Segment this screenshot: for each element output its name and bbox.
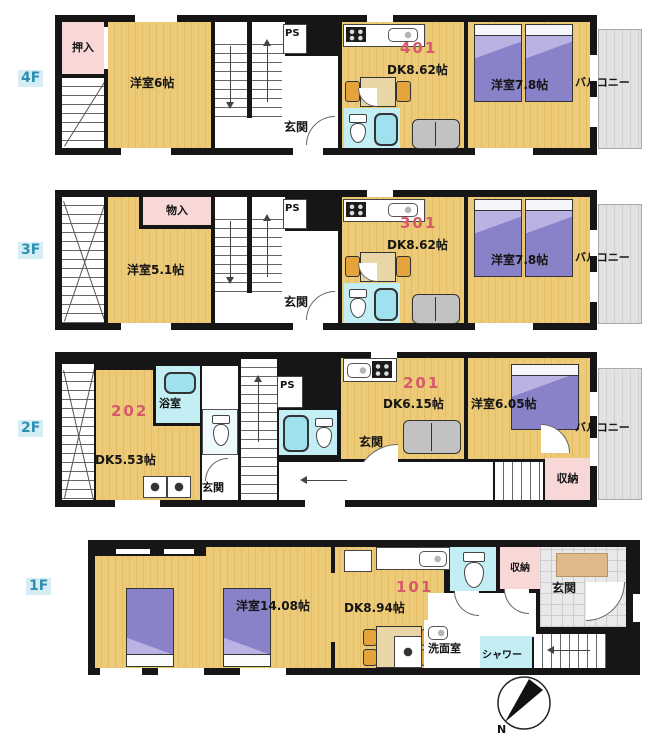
f1-toilet-icon bbox=[464, 562, 484, 588]
f3-monoire-label: 物入 bbox=[166, 205, 188, 217]
f2-sink-icon bbox=[347, 363, 371, 378]
compass-north-label: N bbox=[497, 723, 506, 736]
f1-shower-label: シャワー bbox=[482, 650, 522, 661]
f2-dk-right-label: DK6.15帖 bbox=[383, 398, 444, 411]
f1-sink-icon bbox=[419, 551, 447, 567]
f1-west-room-label: 洋室14.08帖 bbox=[236, 600, 310, 613]
floor-plan-2f: 浴室 202 DK5.53帖 玄関 PS 201 DK6.15帖 玄関 bbox=[55, 352, 597, 507]
f1-washer-icon bbox=[394, 636, 422, 668]
f2-balcony-label: バルコニー bbox=[575, 422, 630, 434]
f4-stairwell-flight-left bbox=[215, 36, 247, 124]
f1-bed-1 bbox=[126, 588, 174, 667]
f4-unit-bath bbox=[344, 108, 400, 148]
f3-balcony-label: バルコニー bbox=[575, 252, 630, 264]
f3-sofa bbox=[412, 294, 460, 324]
f3-west-room-51-label: 洋室5.1帖 bbox=[127, 264, 184, 277]
f2-shared-corridor bbox=[279, 462, 493, 500]
f1-washroom-label: 洗面室 bbox=[428, 643, 461, 655]
f4-bed-1-pillow bbox=[475, 25, 521, 36]
f2-unit-toilet-tank-icon bbox=[315, 418, 333, 427]
f2-unit-toilet-icon bbox=[316, 427, 332, 448]
f2-corridor-arrow-head bbox=[300, 476, 307, 484]
f3-stairwell-flight-left bbox=[215, 211, 247, 299]
floor-label-3f: 3F bbox=[18, 242, 43, 259]
f3-stairwell-flight-right bbox=[252, 211, 285, 299]
f2-storage: 収納 bbox=[545, 458, 590, 500]
f3-west-room-78-label: 洋室7.8帖 bbox=[491, 254, 548, 267]
f4-stove-icon bbox=[346, 27, 366, 42]
f1-stair-arrow-shaft bbox=[554, 650, 590, 651]
f1-bed-1-sheet bbox=[127, 654, 173, 666]
f2-window-bottom-2 bbox=[305, 500, 345, 507]
compass-icon: N bbox=[494, 674, 556, 736]
f2-storage-label: 収納 bbox=[557, 473, 579, 485]
f3-balcony-window-opening bbox=[590, 272, 597, 302]
f3-unit-bath bbox=[344, 283, 400, 323]
f3-entry-opening bbox=[293, 323, 323, 330]
floor-plan-1f: 洋室14.08帖 101 DK8.94帖 収納 洗面室 シャワー bbox=[88, 540, 640, 675]
f1-stairs bbox=[534, 634, 606, 668]
f2-window-top-1 bbox=[371, 352, 397, 358]
f3-ps-label: PS bbox=[285, 203, 300, 214]
f4-stairs-left bbox=[62, 78, 104, 148]
f1-window-top-2 bbox=[164, 549, 194, 554]
f1-window-top-1 bbox=[116, 549, 150, 554]
f2-ps-label: PS bbox=[280, 380, 295, 391]
f2-unit-number-left: 202 bbox=[111, 404, 148, 419]
floor-plan-sheet: 4F 3F 2F 1F 押入 洋室6帖 PS 玄関 bbox=[0, 0, 666, 741]
f3-window-top-1 bbox=[367, 190, 393, 197]
f4-toilet-icon bbox=[350, 123, 366, 143]
f4-ps-label: PS bbox=[285, 28, 300, 39]
f4-oshiire-label: 押入 bbox=[72, 42, 94, 54]
floor-plan-3f: 物入 洋室5.1帖 PS 玄関 301 DK8.62帖 bbox=[55, 190, 597, 330]
floor-label-4f: 4F bbox=[18, 70, 43, 87]
f3-chair-right bbox=[396, 256, 411, 277]
f4-west-room-6-label: 洋室6帖 bbox=[130, 77, 174, 90]
f1-storage-label: 収納 bbox=[510, 563, 530, 574]
f3-stairwell bbox=[215, 197, 285, 323]
f3-toilet-tank-icon bbox=[349, 289, 367, 298]
f1-appliance-icon bbox=[344, 550, 372, 572]
f4-west-room-78-label: 洋室7.8帖 bbox=[491, 79, 548, 92]
f4-genkan-label: 玄関 bbox=[284, 121, 308, 134]
f2-toilet-icon bbox=[213, 424, 229, 446]
f4-bed-2-pillow bbox=[526, 25, 572, 36]
f2-stair-arrow-up-shaft bbox=[258, 382, 259, 442]
f2-window-bottom-1 bbox=[115, 500, 160, 507]
f3-stair-arrow-down-head bbox=[226, 277, 234, 284]
f1-storage: 収納 bbox=[500, 547, 540, 589]
f3-dk-label: DK8.62帖 bbox=[387, 239, 448, 252]
f1-genkan-mat bbox=[556, 553, 608, 577]
f4-window-top-2 bbox=[367, 15, 393, 22]
f1-room-divider-top bbox=[331, 547, 335, 573]
f1-stair-arrow-head bbox=[547, 646, 554, 654]
f4-stair-arrow-up-shaft bbox=[267, 46, 268, 102]
f4-toilet-tank-icon bbox=[349, 114, 367, 123]
f3-bathtub-icon bbox=[374, 288, 398, 321]
f2-balcony-door-opening bbox=[590, 392, 597, 416]
f2-bed-pillow bbox=[512, 365, 578, 376]
f3-stair-arrow-down-shaft bbox=[230, 221, 231, 277]
f4-stair-arrow-down-shaft bbox=[230, 46, 231, 102]
f3-stairs-left bbox=[62, 197, 104, 323]
f2-stairs-down bbox=[495, 462, 543, 500]
f3-genkan-label: 玄関 bbox=[284, 296, 308, 309]
f2-dk-left-label: DK5.53帖 bbox=[95, 454, 156, 467]
f2-west-room-label: 洋室6.05帖 bbox=[471, 398, 537, 411]
f3-balcony-door-opening bbox=[590, 230, 597, 256]
f3-stair-arrow-up-head bbox=[263, 214, 271, 221]
f1-chair-1 bbox=[363, 629, 377, 646]
f3-toilet-icon bbox=[350, 298, 366, 318]
floor-label-1f: 1F bbox=[26, 578, 51, 595]
f1-window-bottom-2 bbox=[158, 668, 204, 675]
f4-sofa bbox=[412, 119, 460, 149]
f1-washbasin-icon bbox=[428, 626, 448, 640]
f2-unit-number-right: 201 bbox=[403, 376, 440, 391]
f3-closet-monoire: 物入 bbox=[139, 197, 211, 229]
f2-toilet-tank-icon bbox=[212, 415, 230, 424]
f1-kitchen-counter bbox=[376, 547, 450, 570]
f1-dk-label: DK8.94帖 bbox=[344, 602, 405, 615]
f2-stove-icon bbox=[372, 361, 392, 378]
f2-sofa-seam bbox=[431, 423, 432, 451]
f3-stair-arrow-up-shaft bbox=[267, 221, 268, 277]
f4-balcony-label: バルコニー bbox=[575, 77, 630, 89]
f3-bed-2-pillow bbox=[526, 200, 572, 211]
f1-toilet-room bbox=[450, 547, 496, 591]
f4-window-bottom-1 bbox=[121, 148, 171, 155]
f4-stair-arrow-down-head bbox=[226, 102, 234, 109]
f2-corridor-arrow-shaft bbox=[307, 480, 347, 481]
f3-window-bottom-1 bbox=[121, 323, 171, 330]
floor-plan-4f: 押入 洋室6帖 PS 玄関 401 DK8.62帖 bbox=[55, 15, 597, 155]
f4-stairs-left-diagonal bbox=[64, 78, 104, 146]
f4-stairwell bbox=[215, 22, 285, 148]
f2-bath-label: 浴室 bbox=[159, 398, 181, 410]
f1-toilet-tank-icon bbox=[463, 552, 485, 562]
f2-sofa bbox=[403, 420, 461, 454]
f2-stairs-left bbox=[62, 364, 94, 500]
f2-bathtub-icon bbox=[164, 372, 196, 394]
f2-unit-bath bbox=[279, 410, 337, 455]
f2-stair-arrow-up-head bbox=[254, 375, 262, 382]
f4-window-bottom-2 bbox=[475, 148, 533, 155]
f1-room-divider-bottom bbox=[331, 642, 335, 668]
f1-chair-2 bbox=[363, 649, 377, 666]
f2-mini-stove-icon bbox=[143, 476, 167, 498]
f4-entry-opening bbox=[293, 148, 323, 155]
f2-unit-bathtub-icon bbox=[283, 415, 309, 452]
f2-kitchen-counter bbox=[343, 358, 397, 382]
f2-balcony-window-opening bbox=[590, 438, 597, 466]
f2-stairs-left-diagonal-2 bbox=[64, 364, 94, 498]
f4-bathtub-icon bbox=[374, 113, 398, 146]
f4-stair-arrow-up-head bbox=[263, 39, 271, 46]
f2-mini-sink-icon bbox=[167, 476, 191, 498]
floor-label-2f: 2F bbox=[18, 420, 43, 437]
f3-stove-icon bbox=[346, 202, 366, 217]
f1-entrance-opening bbox=[633, 594, 640, 622]
f1-window-bottom-1 bbox=[100, 668, 142, 675]
f4-closet-oshiire: 押入 bbox=[62, 22, 104, 74]
f1-window-bottom-3 bbox=[240, 668, 286, 675]
f3-unit-number: 301 bbox=[400, 216, 437, 231]
f3-sofa-seam bbox=[435, 297, 436, 321]
f4-dk-label: DK8.62帖 bbox=[387, 64, 448, 77]
f3-window-bottom-2 bbox=[475, 323, 533, 330]
f2-toilet-room bbox=[202, 409, 238, 455]
f1-genkan-label: 玄関 bbox=[552, 582, 576, 595]
f2-genkan-left-label: 玄関 bbox=[202, 482, 224, 494]
f2-bathroom bbox=[153, 366, 200, 426]
f4-balcony-door-opening bbox=[590, 55, 597, 81]
f4-stairwell-flight-right bbox=[252, 36, 285, 124]
f3-bed-1-pillow bbox=[475, 200, 521, 211]
f4-chair-right bbox=[396, 81, 411, 102]
f4-window-top-1 bbox=[135, 15, 177, 22]
f4-unit-number: 401 bbox=[400, 41, 437, 56]
f4-balcony-window-opening bbox=[590, 97, 597, 127]
f1-bed-2-sheet bbox=[224, 654, 270, 666]
f4-sofa-seam bbox=[435, 122, 436, 146]
